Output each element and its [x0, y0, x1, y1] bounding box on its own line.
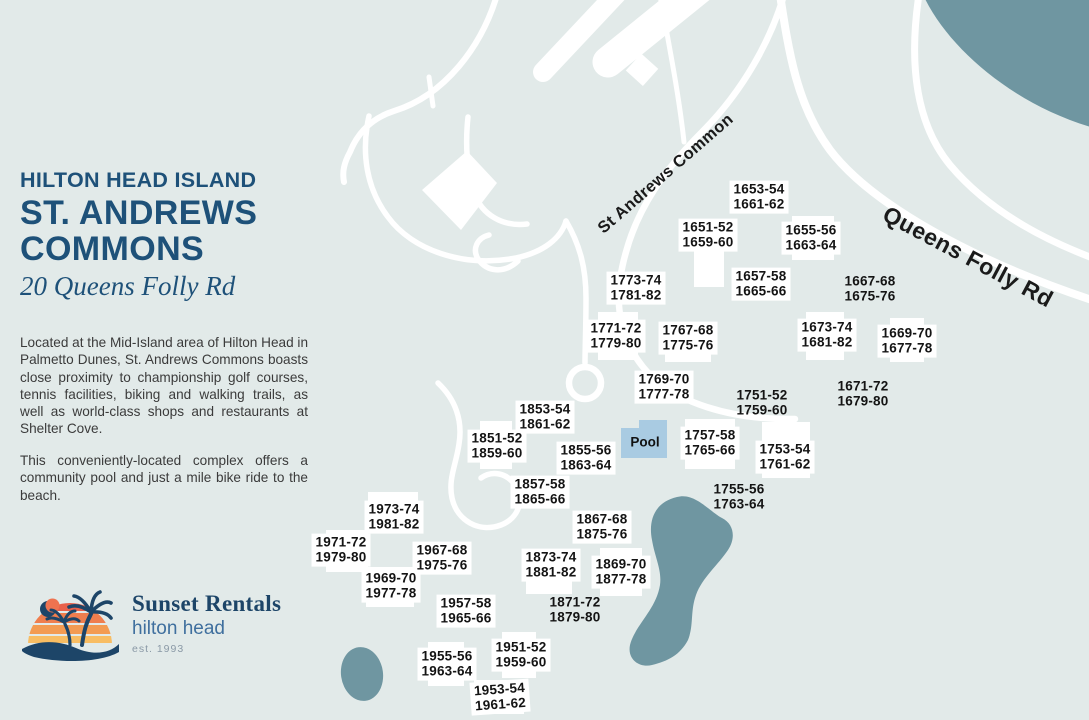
- water-pond-bottom-left: [337, 644, 386, 703]
- road-roundabout: [569, 367, 601, 399]
- sunset-rentals-logo: Sunset Rentals hilton head est. 1993: [20, 583, 281, 663]
- unit-label-1973-74: 1973-74 1981-82: [365, 501, 424, 534]
- unit-label-1655-56: 1655-56 1663-64: [782, 222, 841, 255]
- pool-label: Pool: [630, 435, 659, 450]
- unit-label-1853-54: 1853-54 1861-62: [516, 401, 575, 434]
- unit-label-1873-74: 1873-74 1881-82: [522, 549, 581, 582]
- unit-label-1651-52: 1651-52 1659-60: [679, 219, 738, 252]
- building-rect: [694, 247, 724, 287]
- unit-label-1867-68: 1867-68 1875-76: [573, 511, 632, 544]
- logo-text: Sunset Rentals hilton head est. 1993: [132, 591, 281, 655]
- unit-label-1771-72: 1771-72 1779-80: [587, 320, 646, 353]
- unit-label-1969-70: 1969-70 1977-78: [362, 570, 421, 603]
- logo-company-name: Sunset Rentals: [132, 591, 281, 617]
- description-paragraph-1: Located at the Mid-Island area of Hilton…: [20, 334, 308, 438]
- water-river-top-right: [920, 0, 1089, 132]
- complex-title-line1: ST. ANDREWS: [20, 195, 257, 231]
- description-paragraph-2: This conveniently-located complex offers…: [20, 452, 308, 504]
- unit-label-1751-52: 1751-52 1759-60: [737, 388, 788, 419]
- unit-label-1953-54: 1953-54 1961-62: [469, 679, 530, 716]
- unit-label-1869-70: 1869-70 1877-78: [592, 556, 651, 589]
- unit-label-1669-70: 1669-70 1677-78: [878, 325, 937, 358]
- unit-label-1673-74: 1673-74 1681-82: [798, 319, 857, 352]
- unit-label-1657-58: 1657-58 1665-66: [732, 268, 791, 301]
- sunset-logo-icon: [20, 583, 120, 663]
- complex-title-line2: COMMONS: [20, 231, 257, 267]
- site-map-poster: 1653-54 1661-621651-52 1659-601655-56 16…: [0, 0, 1089, 720]
- unit-label-1755-56: 1755-56 1763-64: [714, 482, 765, 513]
- complex-address: 20 Queens Folly Rd: [20, 271, 235, 302]
- unit-label-1769-70: 1769-70 1777-78: [635, 371, 694, 404]
- unit-label-1667-68: 1667-68 1675-76: [845, 274, 896, 305]
- unit-label-1955-56: 1955-56 1963-64: [418, 648, 477, 681]
- unit-label-1957-58: 1957-58 1965-66: [437, 595, 496, 628]
- building-clubhouse: [422, 151, 497, 230]
- unit-label-1951-52: 1951-52 1959-60: [492, 639, 551, 672]
- unit-label-1773-74: 1773-74 1781-82: [607, 272, 666, 305]
- unit-label-1871-72: 1871-72 1879-80: [550, 595, 601, 626]
- road-connector-top: [429, 77, 433, 106]
- unit-label-1753-54: 1753-54 1761-62: [756, 441, 815, 474]
- logo-location: hilton head: [132, 618, 281, 640]
- unit-label-1757-58: 1757-58 1765-66: [681, 427, 740, 460]
- unit-label-1653-54: 1653-54 1661-62: [730, 181, 789, 214]
- unit-label-1671-72: 1671-72 1679-80: [838, 379, 889, 410]
- unit-label-1855-56: 1855-56 1863-64: [557, 442, 616, 475]
- region-heading: HILTON HEAD ISLAND: [20, 168, 312, 193]
- unit-label-1971-72: 1971-72 1979-80: [312, 534, 371, 567]
- unit-label-1851-52: 1851-52 1859-60: [468, 430, 527, 463]
- unit-label-1857-58: 1857-58 1865-66: [511, 476, 570, 509]
- road-cluster-hook: [475, 235, 518, 270]
- road-to-roundabout: [566, 221, 586, 363]
- complex-title: ST. ANDREWS COMMONS: [20, 195, 257, 268]
- logo-established: est. 1993: [132, 643, 281, 655]
- unit-label-1767-68: 1767-68 1775-76: [659, 322, 718, 355]
- unit-label-1967-68: 1967-68 1975-76: [413, 542, 472, 575]
